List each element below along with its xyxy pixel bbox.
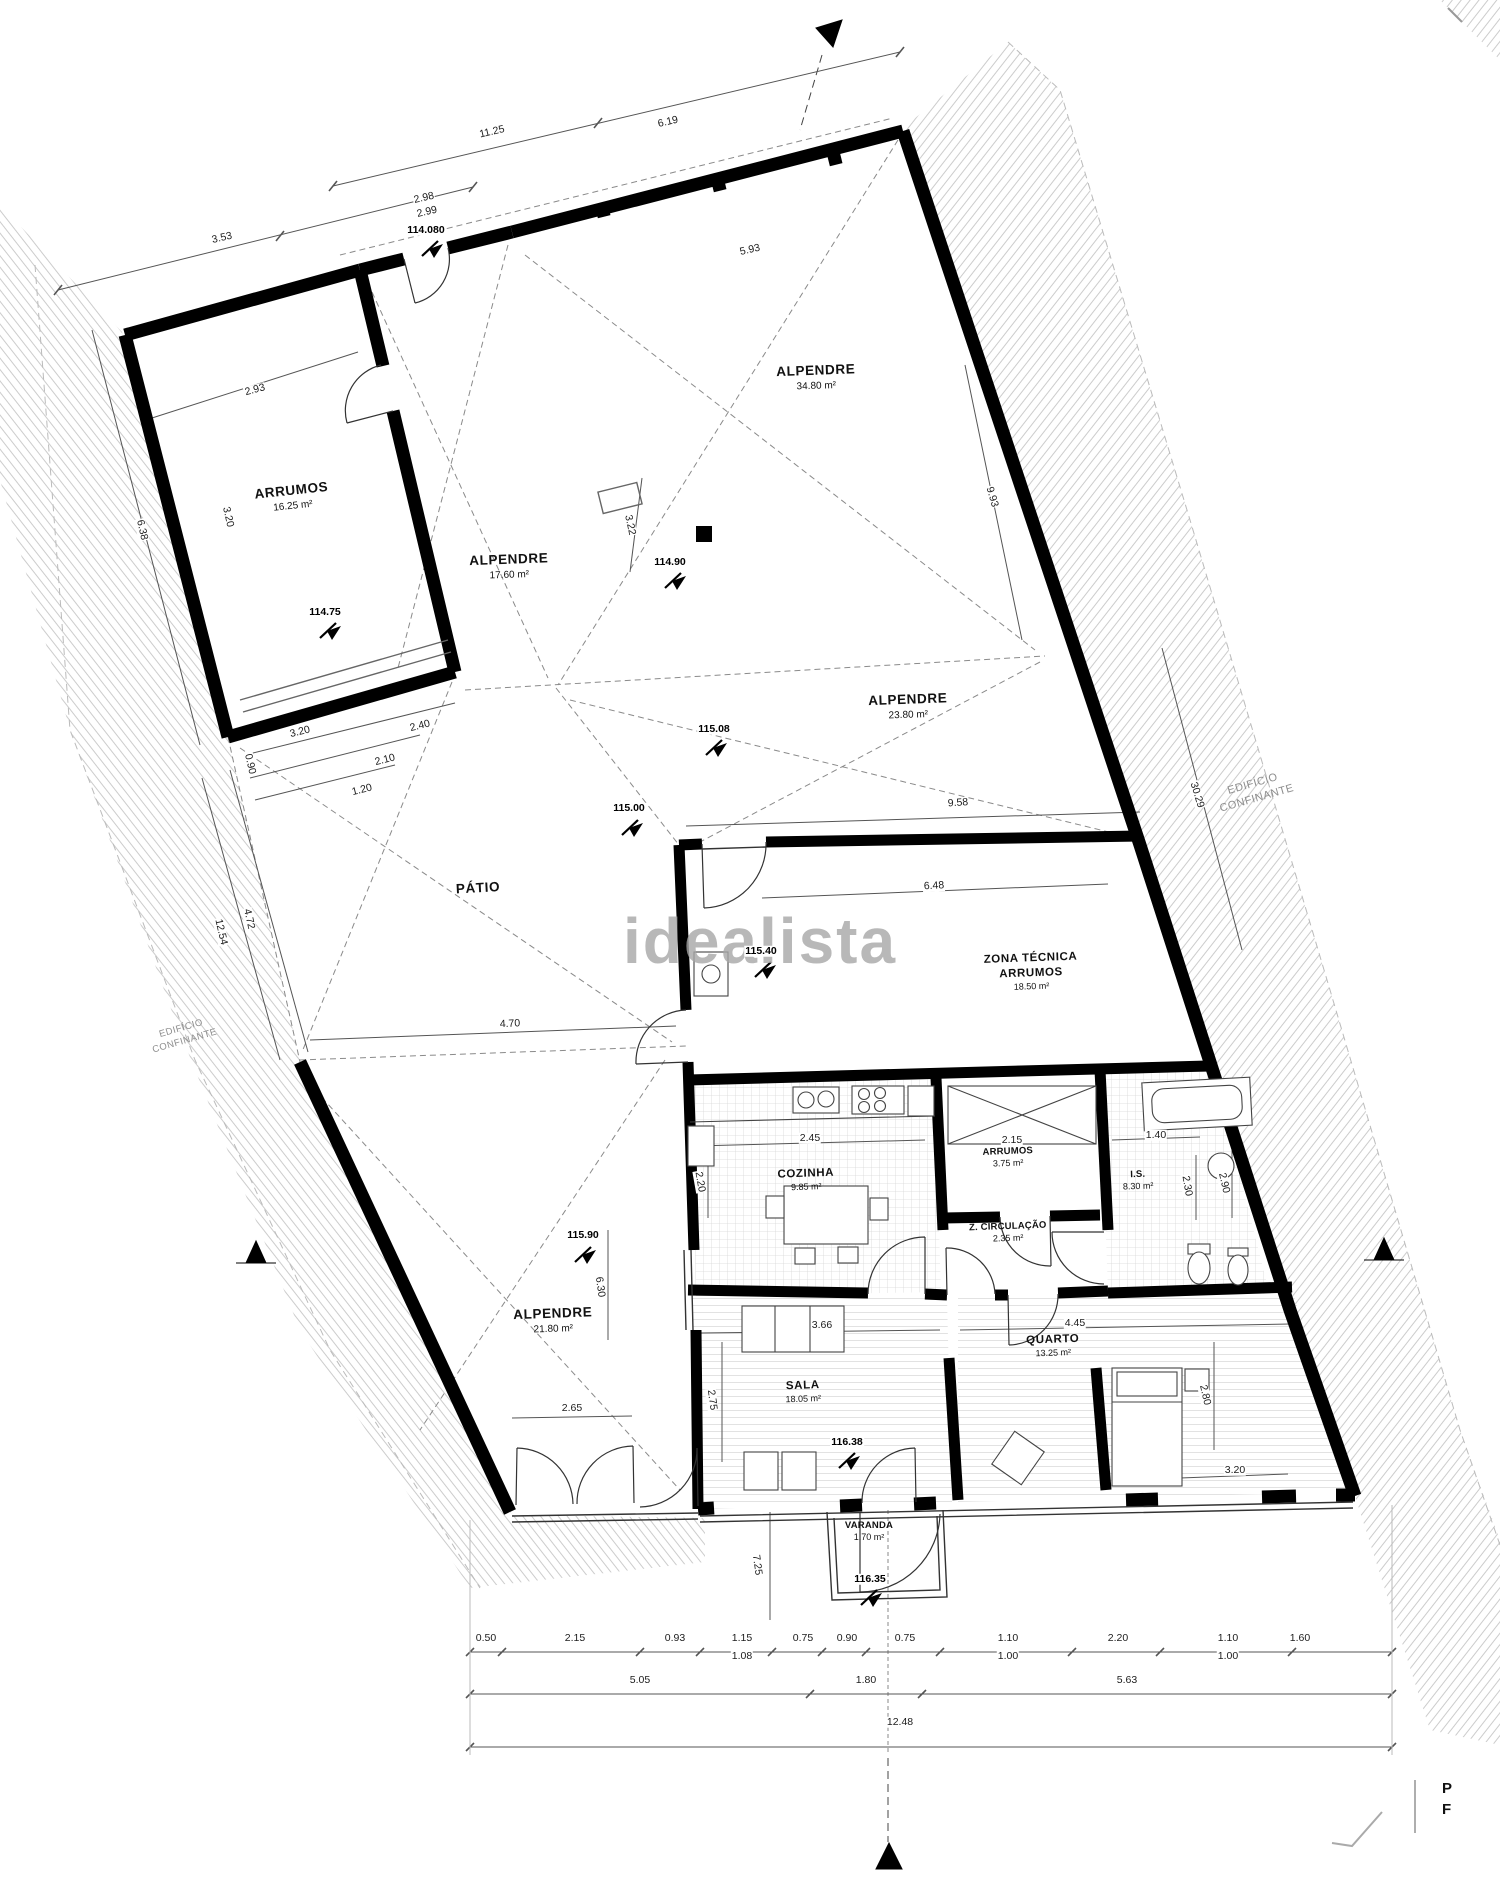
dimension-label: 2.75 bbox=[705, 1388, 719, 1412]
room-label-alpendre-north: ALPENDRE34.80 m² bbox=[776, 360, 856, 393]
dimension-label: 0.93 bbox=[664, 1633, 686, 1644]
elevation-114080: 114.080 bbox=[406, 225, 445, 236]
elevation-11500: 115.00 bbox=[612, 803, 646, 814]
dimension-label: 6.48 bbox=[923, 880, 946, 892]
elevation-11475: 114.75 bbox=[308, 607, 342, 618]
dimension-label: 9.58 bbox=[946, 797, 969, 809]
floor-plan-canvas: idealista EDIFÍCIO CONFINANTE EDIFÍCIO C… bbox=[0, 0, 1500, 1896]
room-label-zona-tecnica: ZONA TÉCNICAARRUMOS18.50 m² bbox=[983, 950, 1078, 995]
room-label-sala: SALA18.05 m² bbox=[785, 1378, 821, 1406]
room-label-alpendre-east: ALPENDRE23.80 m² bbox=[868, 689, 948, 722]
elevation-11490: 114.90 bbox=[653, 557, 687, 568]
elevation-11540: 115.40 bbox=[744, 946, 778, 957]
room-label-cozinha: COZINHA9.85 m² bbox=[777, 1166, 834, 1195]
dimension-label: 5.05 bbox=[629, 1675, 651, 1686]
dimension-label: 2.20 bbox=[1107, 1633, 1129, 1644]
dimension-label: 7.25 bbox=[750, 1553, 764, 1577]
room-label-arrumos-small: ARRUMOS3.75 m² bbox=[982, 1145, 1033, 1171]
dimension-label: 1.00 bbox=[997, 1651, 1019, 1662]
room-label-alpendre-west: ALPENDRE17.60 m² bbox=[469, 549, 549, 582]
dimension-label: 2.15 bbox=[1001, 1135, 1023, 1146]
elevation-11635: 116.35 bbox=[853, 1574, 887, 1585]
dimension-label: 2.20 bbox=[693, 1170, 707, 1194]
room-label-circulacao: Z. CIRCULAÇÃO2.35 m² bbox=[969, 1220, 1047, 1247]
dimension-label: 2.45 bbox=[799, 1133, 821, 1144]
room-label-varanda: VARANDA1.70 m² bbox=[845, 1520, 893, 1544]
elevation-11508: 115.08 bbox=[697, 724, 731, 735]
dimension-label: 1.80 bbox=[855, 1675, 877, 1686]
corner-text-fragment: P F bbox=[1442, 1778, 1452, 1820]
dimension-label: 1.10 bbox=[1217, 1633, 1239, 1644]
bathtub bbox=[1142, 1077, 1252, 1131]
dimension-label: 2.65 bbox=[561, 1403, 583, 1414]
dimension-label: 0.75 bbox=[792, 1633, 814, 1644]
room-label-is: I.S.8.30 m² bbox=[1122, 1168, 1153, 1193]
toilet bbox=[1188, 1244, 1210, 1284]
dimension-label: 5.63 bbox=[1116, 1675, 1138, 1686]
dimension-label: 4.45 bbox=[1064, 1318, 1086, 1329]
dimension-label: 0.90 bbox=[836, 1633, 858, 1644]
idealista-watermark: idealista bbox=[623, 904, 897, 978]
dimension-label: 4.70 bbox=[499, 1018, 522, 1030]
bidet bbox=[1228, 1248, 1248, 1285]
dimension-label: 1.08 bbox=[731, 1651, 753, 1662]
sofa bbox=[744, 1452, 778, 1490]
elevation-11638: 116.38 bbox=[830, 1437, 864, 1448]
room-label-alpendre-south: ALPENDRE21.80 m² bbox=[513, 1303, 593, 1336]
dimension-label: 2.15 bbox=[564, 1633, 586, 1644]
dimension-label: 2.30 bbox=[1180, 1174, 1194, 1198]
dimension-label: 0.50 bbox=[475, 1633, 497, 1644]
dimension-label: 1.60 bbox=[1289, 1633, 1311, 1644]
room-label-patio: PÁTIO bbox=[455, 878, 500, 898]
dimension-label: 6.30 bbox=[593, 1275, 607, 1299]
elevation-11590: 115.90 bbox=[566, 1230, 600, 1241]
dimension-label: 1.10 bbox=[997, 1633, 1019, 1644]
room-label-quarto: QUARTO13.25 m² bbox=[1026, 1332, 1080, 1360]
dimension-label: 1.15 bbox=[731, 1633, 753, 1644]
bed bbox=[1112, 1368, 1182, 1486]
dimension-label: 0.75 bbox=[894, 1633, 916, 1644]
dimension-label: 1.00 bbox=[1217, 1651, 1239, 1662]
dimension-label: 1.40 bbox=[1145, 1130, 1167, 1141]
dimension-label: 12.48 bbox=[886, 1717, 914, 1728]
dimension-label: 3.66 bbox=[811, 1320, 833, 1331]
dimension-label: 3.20 bbox=[1224, 1465, 1246, 1476]
